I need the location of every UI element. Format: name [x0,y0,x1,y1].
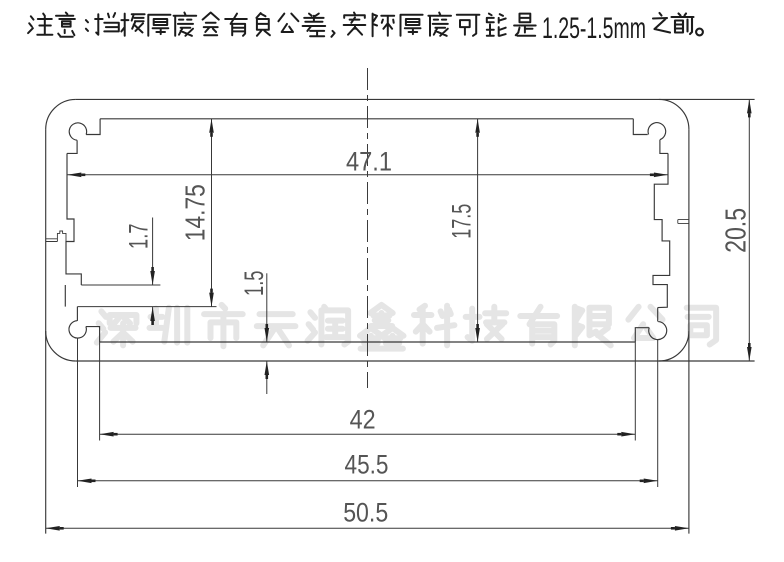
svg-text:50.5: 50.5 [343,497,388,527]
svg-text:42: 42 [350,405,376,435]
svg-text:45.5: 45.5 [345,450,389,480]
svg-text:47.1: 47.1 [346,147,392,177]
svg-text:17.5: 17.5 [446,204,476,239]
svg-text:1.25-1.5mm: 1.25-1.5mm [542,12,646,45]
svg-text:1.5: 1.5 [239,271,269,297]
svg-text:20.5: 20.5 [721,208,753,253]
svg-text:1.7: 1.7 [124,224,154,250]
svg-text:14.75: 14.75 [180,184,211,241]
